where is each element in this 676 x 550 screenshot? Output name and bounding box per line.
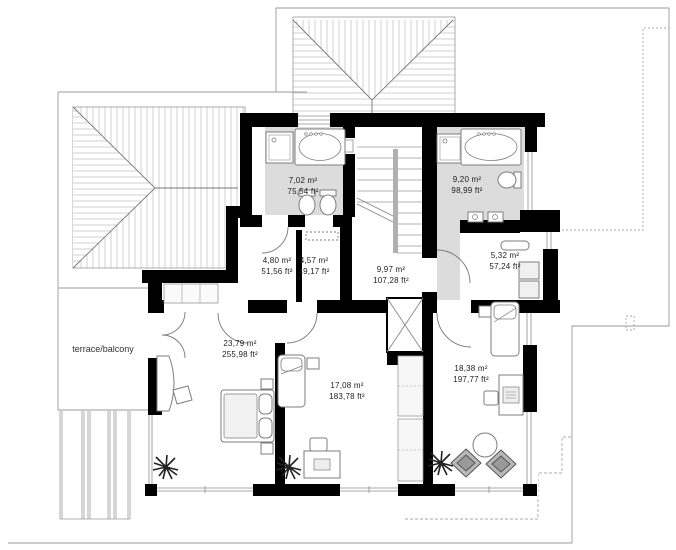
bathroom2-vestibule-floor <box>437 232 460 300</box>
roof-middle <box>293 17 455 117</box>
bathtub-icon <box>295 129 345 165</box>
roof-left <box>73 107 245 268</box>
cabinet-icon <box>519 262 539 279</box>
toilet-icon <box>498 172 521 188</box>
round-table-icon <box>473 433 497 457</box>
room-label-room532: 5,32 m² 57,24 ft² <box>489 250 520 272</box>
room-label-room480: 4,80 m² 51,56 ft² <box>261 255 292 277</box>
shower-icon <box>437 134 463 163</box>
room-label-bedroom2379: 23,79 m² 255,98 ft² <box>222 338 258 360</box>
bidet-icon <box>320 190 336 215</box>
wardrobe-icon <box>164 284 218 303</box>
bathtub-icon <box>461 129 521 165</box>
chimney-shaft <box>387 298 423 352</box>
room-label-hall: 9,97 m² 107,28 ft² <box>373 264 409 286</box>
stair-railing <box>393 149 398 253</box>
room-label-bathroom2: 9,20 m² 98,99 ft² <box>451 174 482 196</box>
terrace-decking <box>60 411 130 519</box>
floor-plan: 7,02 m² 75,54 ft² 9,20 m² 98,99 ft² 4,80… <box>0 0 676 550</box>
room-label-bedroom1838: 18,38 m² 197,77 ft² <box>453 363 489 385</box>
shelf-icon <box>501 241 529 250</box>
room-label-bedroom1708: 17,08 m² 183,78 ft² <box>329 380 365 402</box>
terrace-label: terrace/balcony <box>72 344 134 354</box>
floor-plan-drawing <box>0 0 676 550</box>
cabinet-icon <box>519 281 539 298</box>
room-label-room457: 4,57 m² 49,17 ft² <box>298 255 329 277</box>
shower-icon <box>266 132 293 163</box>
room-label-bathroom1: 7,02 m² 75,54 ft² <box>287 175 318 197</box>
